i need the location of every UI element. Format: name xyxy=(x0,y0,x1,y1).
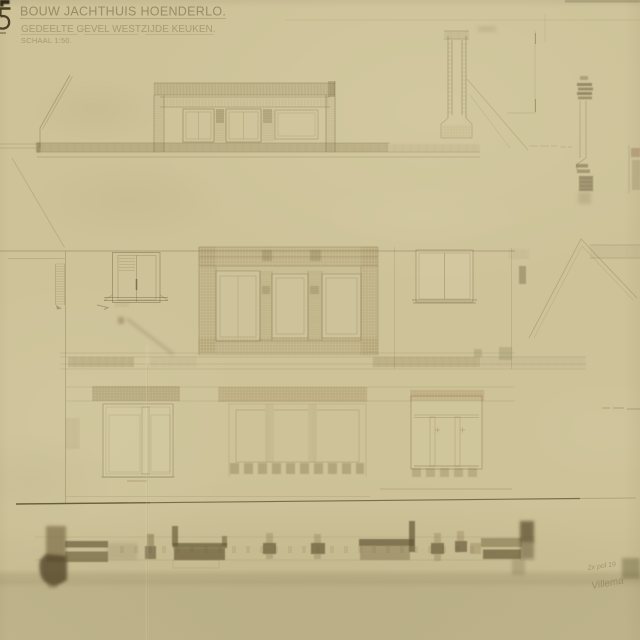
svg-text:BOUW JACHTHUIS HOENDERLO.: BOUW JACHTHUIS HOENDERLO. xyxy=(20,5,226,19)
svg-text:Villema: Villema xyxy=(591,575,625,592)
svg-text:SCHAAL 1:50.: SCHAAL 1:50. xyxy=(21,36,72,45)
svg-text:2x pol 19: 2x pol 19 xyxy=(586,561,616,572)
svg-text:GEDEELTE GEVEL WESTZIJDE KEUKE: GEDEELTE GEVEL WESTZIJDE KEUKEN. xyxy=(21,24,216,35)
